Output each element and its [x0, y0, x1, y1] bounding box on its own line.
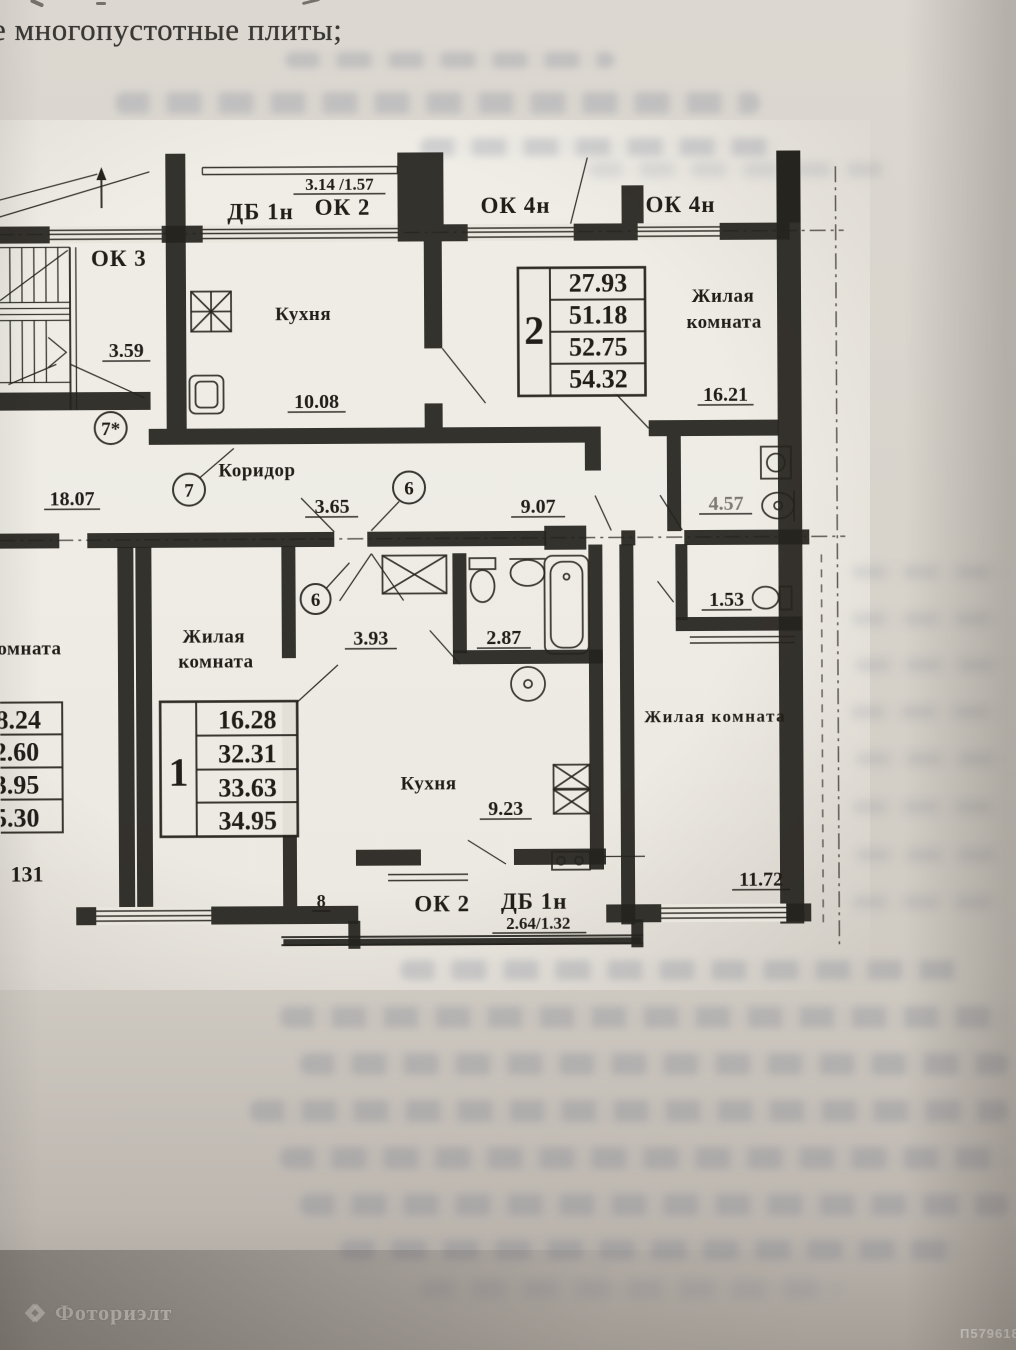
apartment2-area-row: 27.93: [569, 268, 628, 297]
dim-corridor-left: 18.07: [50, 488, 95, 510]
apartment2-area-row: 52.75: [569, 332, 628, 361]
apartment1-area-row: 16.28: [218, 705, 277, 734]
apartment1-kitchen-fittings: [467, 667, 590, 871]
kitchen-south-wall: [149, 427, 585, 445]
dim-top-window: 3.14 /1.57: [305, 175, 374, 194]
left-room-label-fragment: комната: [0, 638, 62, 659]
staircase: [0, 167, 151, 411]
axis-marker-6: 6: [371, 471, 425, 530]
kitchen-west-wall: [166, 226, 187, 429]
living-right-walls: [599, 544, 645, 924]
dim-wc-right: 1.53: [709, 589, 744, 611]
bath-top-right: [667, 436, 794, 532]
room-label-kitchen-top: Кухня: [275, 304, 331, 325]
apartment1-number: 1: [168, 750, 188, 795]
room-label-corridor: Коридор: [218, 460, 295, 481]
window-label-ok4n-left: ОК 4н: [480, 193, 550, 218]
apartment1-closet: [339, 553, 446, 601]
dim-hall-apt1: 3.93: [353, 628, 388, 650]
dim-kitchen-top: 10.08: [294, 391, 339, 413]
room-label-living-top: Жилая: [692, 286, 755, 307]
floor-plan: 2 27.93 51.18 52.75 54.32: [0, 0, 1016, 1350]
dim-living-right: 11.72: [739, 869, 783, 891]
apartment1-area-table: 1 16.28 32.31 33.63 34.95: [160, 701, 298, 837]
svg-text:6: 6: [404, 478, 414, 499]
apartment2-area-row: 51.18: [569, 300, 628, 329]
dim-kitchen-apt1: 9.23: [488, 798, 523, 820]
kitchen-living-divider: [424, 241, 486, 427]
kitchen-top-vent-shaft: [191, 291, 231, 331]
dim-wall-small: 8: [317, 891, 326, 911]
dim-living-top: 16.21: [703, 384, 748, 406]
axis-marker-6-lower: 6: [300, 563, 349, 614]
window-label-ok2-top: ОК 2: [315, 195, 371, 220]
room-label-living-right: Жилая комната: [644, 707, 786, 727]
apartment-left: 8.24 2.60 3.95 5.30 комната 131: [0, 547, 135, 925]
room-label-living-apt1: комната: [178, 651, 253, 672]
dim-bath-apt1: 2.87: [486, 627, 521, 649]
dim-bath-top-right: 4.57: [709, 493, 744, 515]
dim-stair: 3.59: [109, 340, 144, 362]
watermark-brand-text: Фоториэлт: [55, 1300, 172, 1326]
window-label-ok4n-right: ОК 4н: [645, 192, 715, 217]
living-top-south-wall: [615, 392, 779, 437]
svg-text:7*: 7*: [101, 419, 120, 440]
apartment-left-area-row: 3.95: [0, 770, 39, 799]
svg-text:7: 7: [184, 481, 194, 502]
room-label-living-top: комната: [686, 312, 761, 333]
apartment1-kitchen-south-wall: [356, 848, 606, 880]
window-label-ok2-bottom: ОК 2: [414, 891, 470, 916]
svg-text:6: 6: [311, 590, 321, 611]
door-label-db1n-bottom: ДБ 1н: [501, 889, 568, 914]
apartment-left-area-row: 2.60: [0, 737, 39, 766]
dim-corridor-right: 9.07: [521, 496, 556, 518]
plan-note: 131: [10, 861, 43, 886]
watermark-photo-id: П579618: [960, 1326, 1016, 1341]
door-label-db1n-top: ДБ 1н: [227, 199, 294, 224]
apartment1-bathroom: [429, 545, 604, 871]
apartment-left-area-row: 5.30: [0, 803, 40, 832]
dim-bottom-window: 2.64/1.32: [506, 914, 570, 933]
apartment1-area-row: 33.63: [218, 773, 277, 802]
dim-corridor-mid: 3.65: [315, 496, 350, 518]
axis-marker-7star: 7*: [95, 412, 127, 444]
apartment2-area-row: 54.32: [569, 364, 628, 393]
room-label-living-apt1: Жилая: [182, 626, 245, 647]
window-label-ok3: ОК 3: [91, 246, 147, 271]
apartment-left-area-row: 8.24: [0, 705, 41, 734]
apartment2-number: 2: [524, 308, 544, 353]
apartment2-area-table: 2 27.93 51.18 52.75 54.32: [518, 267, 646, 396]
photographed-page: е многопустотные плиты;: [0, 0, 1016, 1350]
apartment1-area-row: 32.31: [218, 739, 277, 768]
watermark-brand: Фоториэлт: [24, 1300, 172, 1326]
wall-hook: [585, 427, 601, 471]
brand-diamond-icon: [24, 1302, 46, 1324]
room-label-kitchen-bottom: Кухня: [400, 773, 456, 794]
kitchen-top-sink: [189, 375, 223, 413]
apartment1-area-row: 34.95: [218, 806, 277, 835]
